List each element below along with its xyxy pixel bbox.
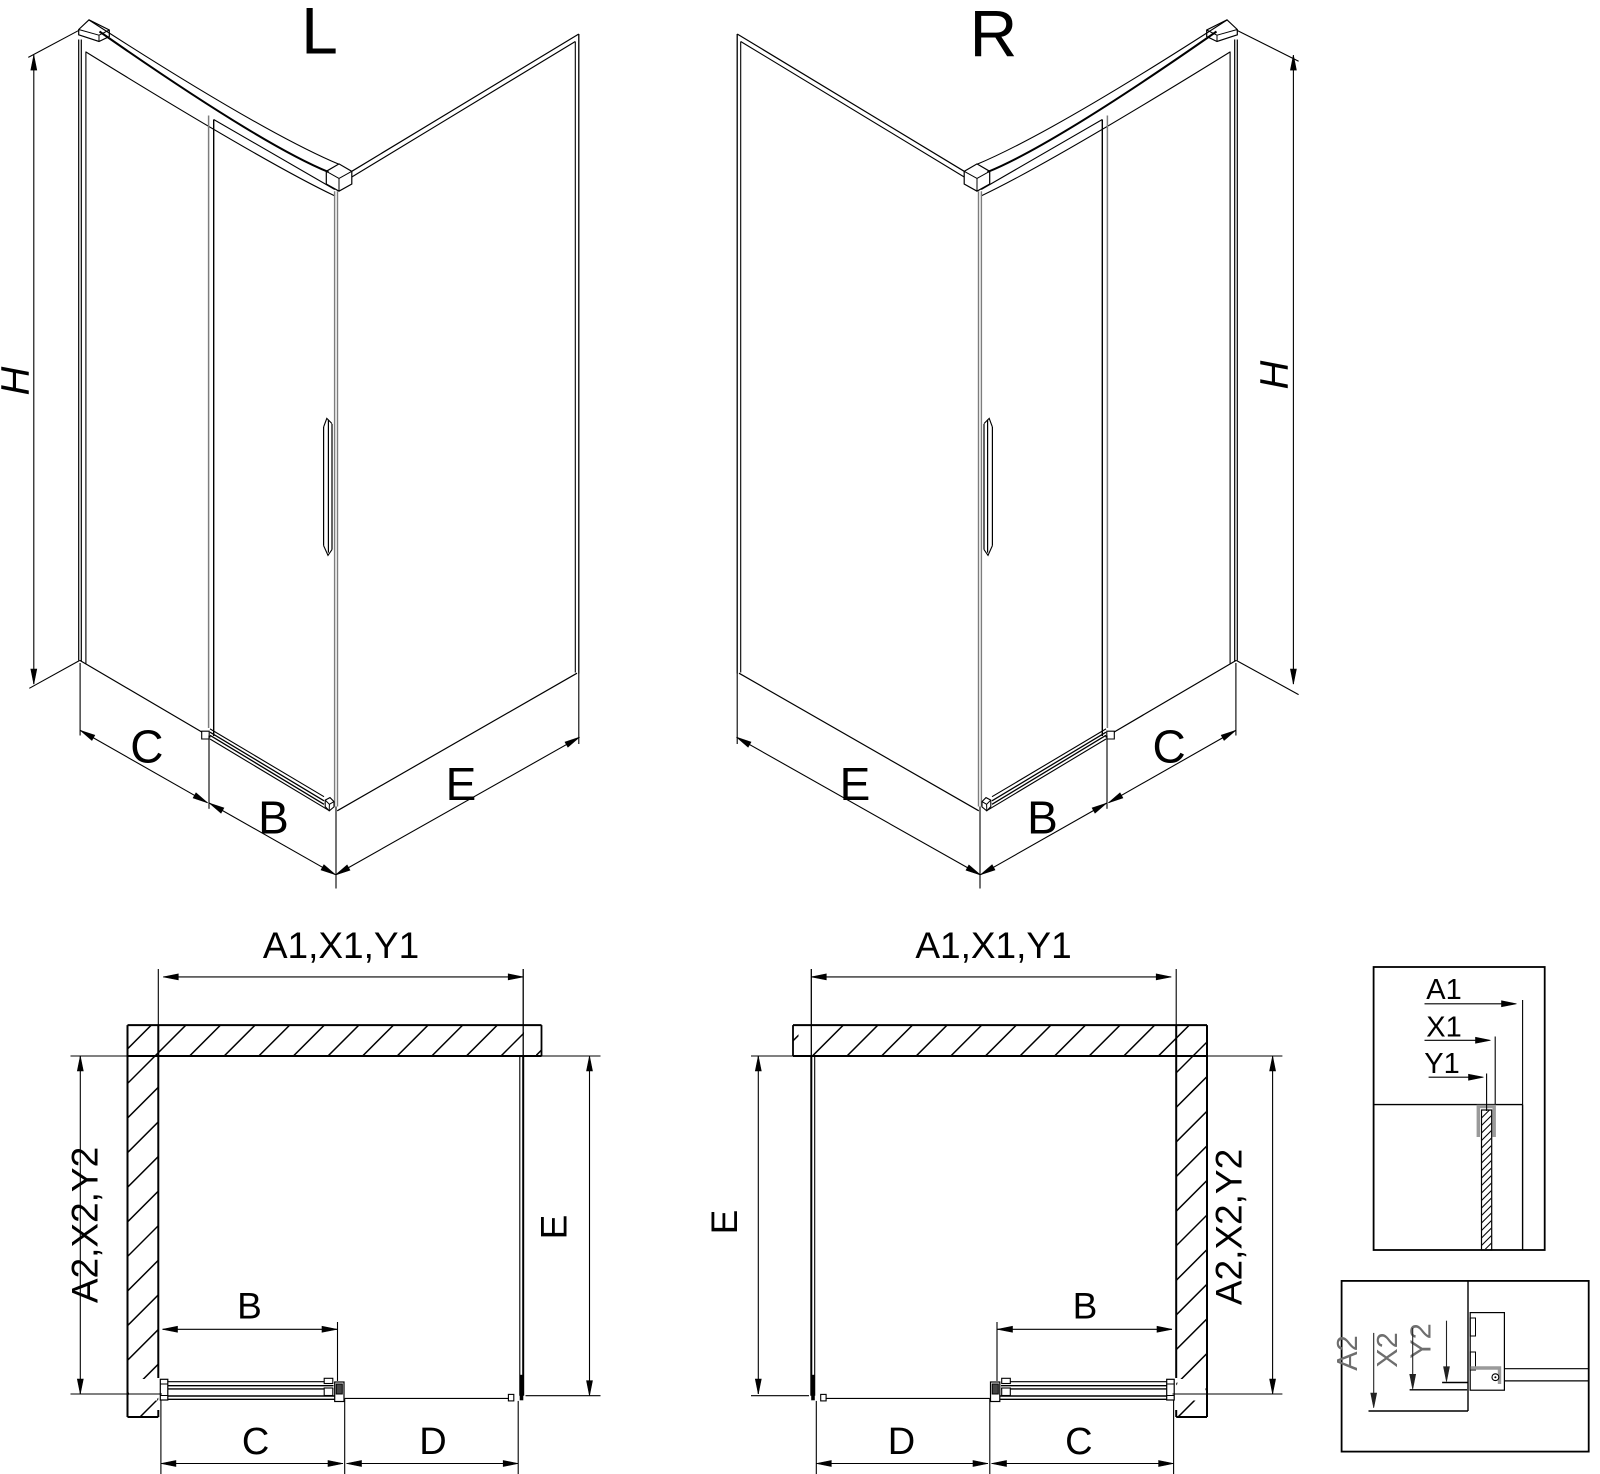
svg-text:B: B bbox=[237, 1286, 262, 1327]
svg-text:C: C bbox=[130, 721, 163, 773]
svg-text:B: B bbox=[1027, 792, 1058, 844]
svg-text:R: R bbox=[970, 0, 1018, 71]
svg-text:X2: X2 bbox=[1372, 1332, 1404, 1367]
svg-text:C: C bbox=[242, 1421, 269, 1463]
svg-text:X1: X1 bbox=[1426, 1012, 1461, 1044]
svg-text:B: B bbox=[258, 792, 289, 844]
svg-text:A2,X2,Y2: A2,X2,Y2 bbox=[1209, 1149, 1250, 1305]
svg-text:Y2: Y2 bbox=[1405, 1323, 1437, 1358]
svg-text:H: H bbox=[1253, 360, 1297, 389]
svg-text:D: D bbox=[419, 1421, 446, 1463]
svg-text:E: E bbox=[840, 758, 871, 810]
svg-text:E: E bbox=[446, 758, 477, 810]
svg-text:E: E bbox=[704, 1210, 745, 1235]
svg-text:D: D bbox=[888, 1421, 915, 1463]
svg-text:B: B bbox=[1073, 1286, 1098, 1327]
svg-text:A1: A1 bbox=[1426, 974, 1461, 1006]
svg-text:A2,X2,Y2: A2,X2,Y2 bbox=[64, 1147, 105, 1303]
svg-text:Y1: Y1 bbox=[1424, 1048, 1459, 1080]
svg-text:L: L bbox=[301, 0, 338, 68]
svg-text:E: E bbox=[534, 1215, 575, 1240]
svg-text:A2: A2 bbox=[1332, 1335, 1364, 1370]
svg-text:A1,X1,Y1: A1,X1,Y1 bbox=[263, 925, 419, 966]
svg-text:A1,X1,Y1: A1,X1,Y1 bbox=[915, 925, 1071, 966]
svg-text:C: C bbox=[1152, 721, 1185, 773]
svg-text:H: H bbox=[0, 366, 38, 395]
svg-text:C: C bbox=[1065, 1421, 1092, 1463]
